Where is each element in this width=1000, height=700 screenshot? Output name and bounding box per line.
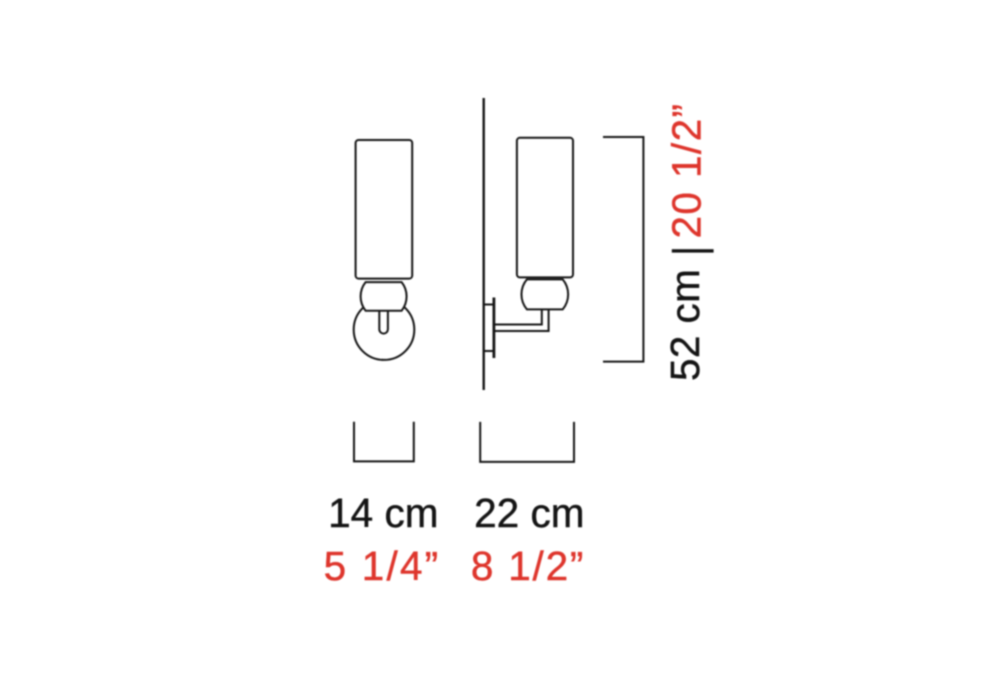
svg-text:5 1/4”: 5 1/4” <box>324 543 441 589</box>
svg-text:20 1/2”: 20 1/2” <box>664 103 710 239</box>
svg-text:52 cm: 52 cm <box>662 269 708 381</box>
svg-text:8 1/2”: 8 1/2” <box>471 543 585 589</box>
svg-text:22 cm: 22 cm <box>474 490 584 536</box>
svg-text:14 cm: 14 cm <box>328 490 438 536</box>
